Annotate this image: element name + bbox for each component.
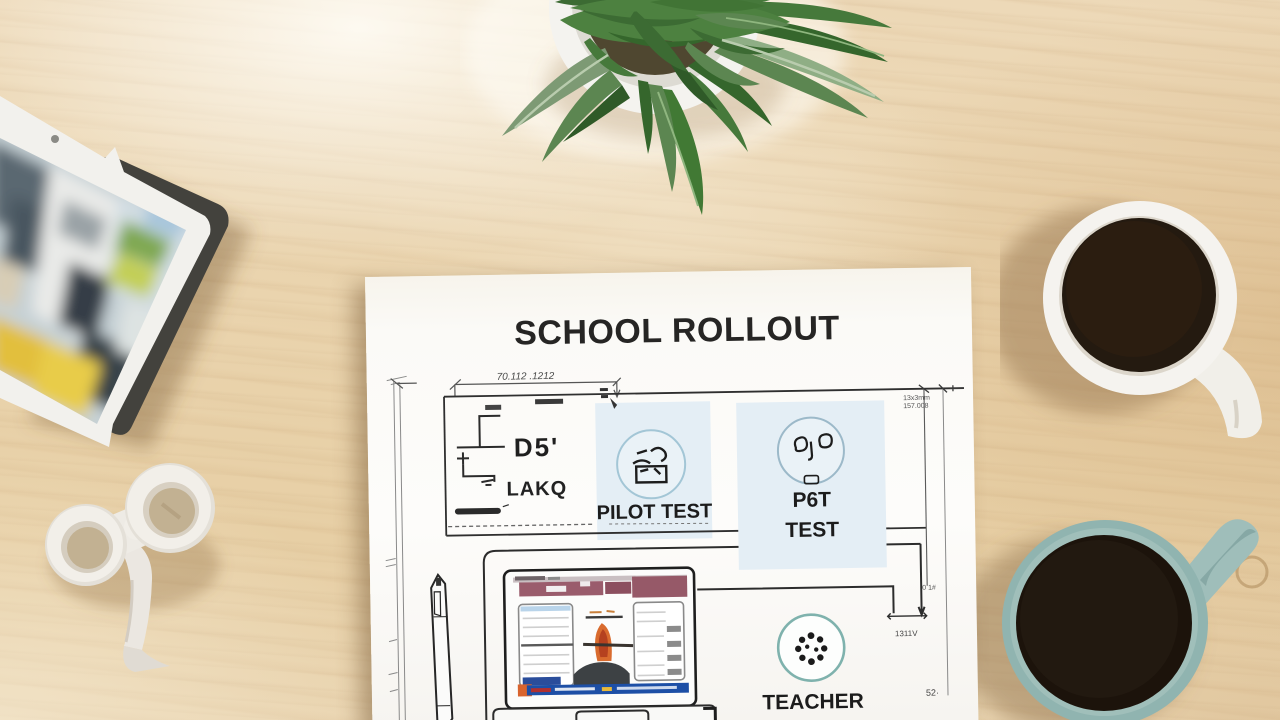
svg-text:52·: 52· <box>926 688 939 698</box>
svg-text:0 1#: 0 1# <box>922 585 936 592</box>
svg-text:13x3mm: 13x3mm <box>903 395 930 402</box>
svg-text:1311V: 1311V <box>895 629 918 638</box>
svg-text:70.112 .1212: 70.112 .1212 <box>497 371 555 383</box>
svg-text:157.008: 157.008 <box>903 403 929 410</box>
